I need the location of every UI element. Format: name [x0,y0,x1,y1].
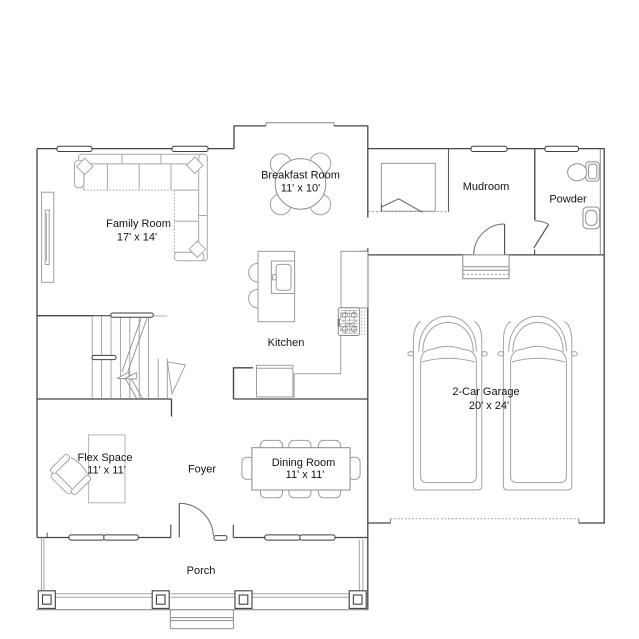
svg-text:Breakfast Room: Breakfast Room [261,170,340,182]
svg-text:Porch: Porch [187,565,216,577]
svg-text:Flex Space: Flex Space [77,452,132,464]
svg-text:Family Room: Family Room [106,218,171,230]
svg-text:11' x 11': 11' x 11' [286,469,325,481]
svg-text:Mudroom: Mudroom [463,181,509,193]
svg-text:Foyer: Foyer [188,464,216,476]
svg-text:2-Car Garage: 2-Car Garage [452,386,519,398]
svg-text:Powder: Powder [549,194,587,206]
svg-text:11' x 11': 11' x 11' [87,465,126,477]
svg-text:Dining Room: Dining Room [272,457,336,469]
svg-text:11' x 10': 11' x 10' [281,183,320,195]
svg-text:Kitchen: Kitchen [268,337,305,349]
svg-text:17' x 14': 17' x 14' [117,232,157,244]
svg-text:20' x 24': 20' x 24' [469,400,509,412]
